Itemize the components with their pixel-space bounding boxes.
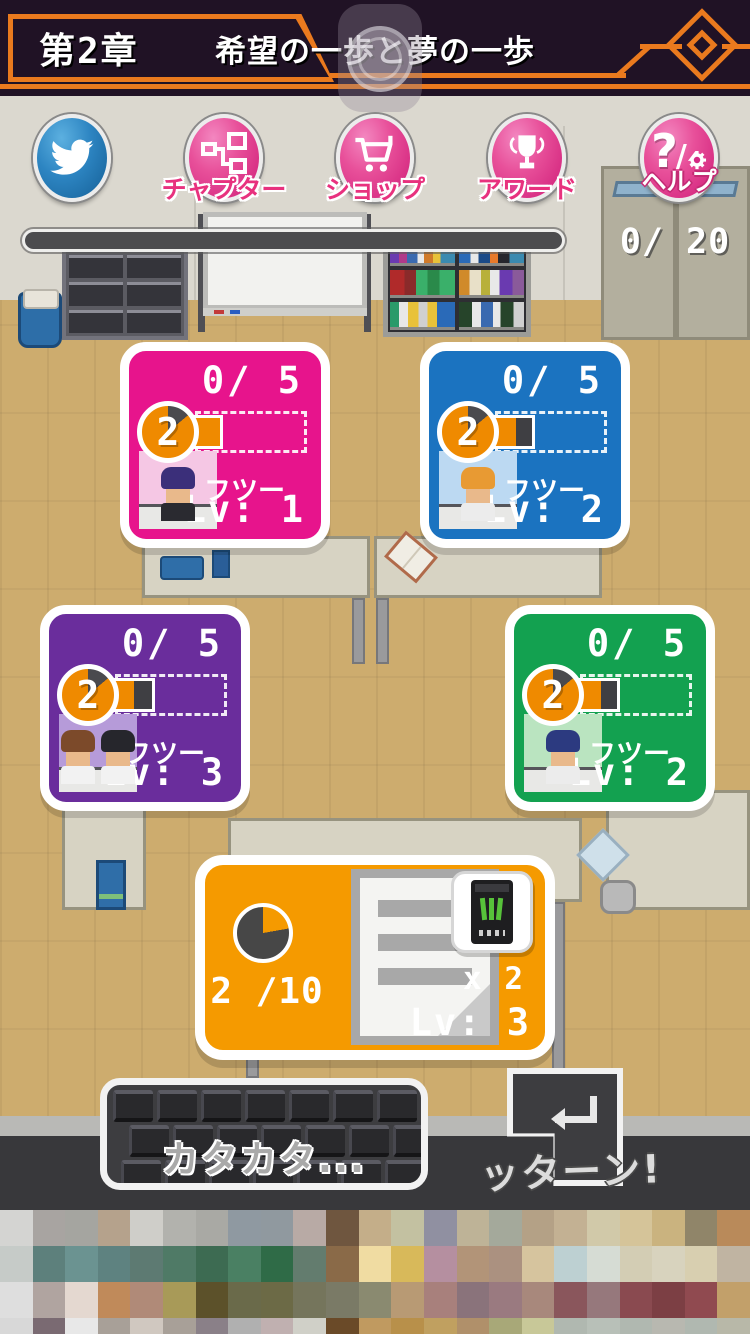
ad-pixel xyxy=(0,1210,33,1246)
shelf-cell xyxy=(69,310,123,333)
ad-pixel xyxy=(98,1282,131,1318)
pencil-case xyxy=(160,556,204,580)
desk-leg xyxy=(376,598,389,664)
ad-pixel xyxy=(326,1246,359,1282)
trash-can xyxy=(18,292,62,348)
keyboard-key xyxy=(289,1090,329,1122)
ad-pixel xyxy=(424,1246,457,1282)
ad-pixel xyxy=(261,1246,294,1282)
ad-pixel xyxy=(33,1210,66,1246)
energy-badge: 2 xyxy=(437,401,499,463)
book-row xyxy=(390,270,455,298)
desk-leg xyxy=(352,598,365,664)
level-label: Lv: 2 xyxy=(484,488,605,531)
cart-icon xyxy=(352,133,398,175)
ad-pixel xyxy=(326,1210,359,1246)
award-button[interactable]: アワード xyxy=(488,114,566,202)
ad-pixel xyxy=(652,1318,685,1334)
pixel-person xyxy=(161,467,195,529)
ad-pixel xyxy=(228,1246,261,1282)
pixel-person xyxy=(461,467,495,529)
ad-pixel xyxy=(489,1282,522,1318)
energy-fill-dark xyxy=(134,681,152,709)
avatar-people xyxy=(161,467,195,529)
avatar xyxy=(59,714,137,792)
book-row xyxy=(459,302,524,330)
whiteboard-tray xyxy=(203,308,367,316)
ad-pixel xyxy=(261,1318,294,1334)
assistive-touch-overlay[interactable] xyxy=(338,4,422,112)
game-screen: 第2章 希望の一歩と夢の一歩 チャプター xyxy=(0,0,750,1334)
ad-pixel xyxy=(261,1210,294,1246)
ad-pixel xyxy=(685,1318,718,1334)
ad-pixel xyxy=(587,1246,620,1282)
writer-card-purple[interactable]: 0/ 5 2 フツー Lv: 3 xyxy=(40,605,250,811)
help-button[interactable]: ?/ ヘルプ xyxy=(640,114,718,202)
ad-pixel xyxy=(359,1246,392,1282)
ad-pixel xyxy=(196,1282,229,1318)
ad-pixel xyxy=(620,1282,653,1318)
typing-sfx-text: カタカタ... xyxy=(107,1129,421,1183)
pen-holder xyxy=(212,550,230,578)
ad-pixel xyxy=(685,1282,718,1318)
ad-pixel xyxy=(522,1210,555,1246)
task-count: 0/ 5 xyxy=(202,359,303,402)
ad-pixel xyxy=(0,1318,33,1334)
ad-pixel xyxy=(652,1246,685,1282)
book-row xyxy=(390,302,455,330)
ad-pixel xyxy=(391,1246,424,1282)
ad-pixel xyxy=(196,1318,229,1334)
ad-pixel xyxy=(98,1210,131,1246)
level-label: Lv: 2 xyxy=(569,751,690,794)
ad-pixel xyxy=(326,1318,359,1334)
shelf-cell xyxy=(127,282,181,305)
ad-pixel xyxy=(587,1318,620,1334)
marker-blue xyxy=(230,310,240,314)
ad-pixel xyxy=(293,1210,326,1246)
ad-pixel xyxy=(33,1246,66,1282)
ad-pixel xyxy=(424,1210,457,1246)
empty-shelf xyxy=(62,248,188,340)
writer-card-green[interactable]: 0/ 5 2 フツー Lv: 2 xyxy=(505,605,715,811)
keyboard-key xyxy=(157,1090,197,1122)
ad-pixel xyxy=(522,1282,555,1318)
ad-pixel xyxy=(359,1282,392,1318)
ad-pixel xyxy=(522,1246,555,1282)
keyboard-key xyxy=(113,1090,153,1122)
ad-pixel xyxy=(522,1318,555,1334)
ad-pixel xyxy=(163,1246,196,1282)
ad-pixel xyxy=(65,1246,98,1282)
shop-button[interactable]: ショップ xyxy=(336,114,414,202)
energy-badge: 2 xyxy=(57,664,119,726)
ad-pixel xyxy=(0,1282,33,1318)
marker-red xyxy=(214,310,224,314)
ad-pixel xyxy=(130,1210,163,1246)
ad-pixel xyxy=(489,1210,522,1246)
ad-pixel xyxy=(196,1246,229,1282)
writer-card-pink[interactable]: 0/ 5 2 フツー Lv: 1 xyxy=(120,342,330,548)
ad-pixel xyxy=(587,1210,620,1246)
ad-pixel xyxy=(163,1282,196,1318)
enter-arrow-icon xyxy=(551,1108,565,1130)
pixel-person xyxy=(546,730,580,792)
ad-pixel xyxy=(717,1318,750,1334)
chapter-progress-bar xyxy=(22,229,565,252)
ad-pixel xyxy=(33,1282,66,1318)
ad-pixel xyxy=(228,1210,261,1246)
ad-pixel xyxy=(65,1210,98,1246)
avatar-people xyxy=(461,467,495,529)
ad-pixel xyxy=(163,1318,196,1334)
assistive-touch-ring xyxy=(358,37,402,81)
blue-book xyxy=(96,860,126,910)
book-row xyxy=(459,270,524,298)
ad-pixel xyxy=(685,1210,718,1246)
ad-pixel xyxy=(620,1318,653,1334)
shelf-cell xyxy=(69,282,123,305)
ad-pixel xyxy=(652,1282,685,1318)
ad-pixel xyxy=(620,1210,653,1246)
ad-pixel xyxy=(457,1210,490,1246)
page-progress: 2 /10 xyxy=(207,971,327,1012)
manuscript-card[interactable]: 2 /10 x 2 Lv: 3 xyxy=(195,855,555,1060)
keyboard-key xyxy=(201,1090,241,1122)
energy-fill-dark xyxy=(516,418,532,446)
ad-pixel xyxy=(457,1318,490,1334)
ad-pixel xyxy=(359,1318,392,1334)
shop-button-label: ショップ xyxy=(325,170,425,206)
keyboard-sfx: カタカタ... xyxy=(100,1078,428,1190)
manuscript-level: Lv: 3 xyxy=(410,1001,531,1044)
ad-pixel xyxy=(489,1246,522,1282)
ad-pixel xyxy=(98,1246,131,1282)
ad-pixel xyxy=(293,1282,326,1318)
whiteboard xyxy=(203,212,367,310)
level-label: Lv: 1 xyxy=(184,488,305,531)
chapter-button-label: チャプター xyxy=(162,170,287,206)
ad-pixel xyxy=(587,1282,620,1318)
keyboard-key xyxy=(377,1090,417,1122)
enter-arrow-icon xyxy=(590,1096,597,1118)
ad-pixel xyxy=(130,1246,163,1282)
task-count: 0/ 5 xyxy=(502,359,603,402)
ad-pixel xyxy=(130,1318,163,1334)
ad-pixel xyxy=(0,1246,33,1282)
energy-drink-icon xyxy=(471,880,513,944)
keyboard-key xyxy=(245,1090,285,1122)
ad-pixel xyxy=(717,1282,750,1318)
ad-pixel xyxy=(261,1282,294,1318)
ad-pixel xyxy=(326,1282,359,1318)
shelf-cell xyxy=(127,310,181,333)
ad-pixel xyxy=(554,1210,587,1246)
ad-pixel xyxy=(391,1318,424,1334)
energy-badge: 2 xyxy=(137,401,199,463)
ad-pixel xyxy=(489,1318,522,1334)
task-count: 0/ 5 xyxy=(587,622,688,665)
energy-drink-slot[interactable] xyxy=(451,871,533,953)
help-button-label: ヘルプ xyxy=(641,162,716,198)
ad-pixel xyxy=(620,1246,653,1282)
ad-pixel xyxy=(293,1246,326,1282)
ad-pixel xyxy=(98,1318,131,1334)
ad-pixel xyxy=(359,1210,392,1246)
task-count: 0/ 5 xyxy=(122,622,223,665)
ad-pixel xyxy=(293,1318,326,1334)
award-button-label: アワード xyxy=(477,170,577,206)
ad-pixel xyxy=(554,1318,587,1334)
ad-pixel xyxy=(554,1246,587,1282)
writer-card-blue[interactable]: 0/ 5 2 フツー Lv: 2 xyxy=(420,342,630,548)
ad-pixel xyxy=(652,1210,685,1246)
shelf-cell xyxy=(69,255,123,278)
ad-pixel xyxy=(196,1210,229,1246)
locker-counter: 0/ 20 xyxy=(600,222,750,262)
ad-pixel xyxy=(717,1246,750,1282)
twitter-bird-icon xyxy=(49,139,95,177)
enter-sfx-text: ッターン! xyxy=(479,1135,741,1200)
ad-pixel xyxy=(163,1210,196,1246)
ad-pixel xyxy=(65,1282,98,1318)
pixel-person xyxy=(61,730,95,792)
keyboard-key xyxy=(333,1090,373,1122)
ad-pixel xyxy=(457,1246,490,1282)
ad-pixel xyxy=(717,1210,750,1246)
avatar-people xyxy=(546,730,580,792)
ad-pixel xyxy=(228,1282,261,1318)
flowchart-icon xyxy=(201,132,247,174)
ad-pixel xyxy=(130,1282,163,1318)
item-count: x 2 xyxy=(463,961,525,997)
ad-pixel xyxy=(65,1318,98,1334)
ad-pixel xyxy=(391,1210,424,1246)
crumpled-paper xyxy=(600,880,636,914)
ad-pixel xyxy=(391,1282,424,1318)
ad-banner[interactable] xyxy=(0,1210,750,1334)
energy-fill-dark xyxy=(601,681,617,709)
ad-pixel xyxy=(554,1282,587,1318)
ad-pixel xyxy=(457,1282,490,1318)
pixel-person xyxy=(101,730,135,792)
ad-pixel xyxy=(424,1282,457,1318)
chapter-button[interactable]: チャプター xyxy=(185,114,263,202)
shelf-cell xyxy=(127,255,181,278)
ad-pixel xyxy=(33,1318,66,1334)
ad-pixel xyxy=(685,1246,718,1282)
ad-pixel xyxy=(228,1318,261,1334)
energy-badge: 2 xyxy=(522,664,584,726)
ad-pixel xyxy=(424,1318,457,1334)
avatar-people xyxy=(61,730,135,792)
progress-pie-icon xyxy=(233,903,293,963)
twitter-button[interactable] xyxy=(33,114,111,202)
